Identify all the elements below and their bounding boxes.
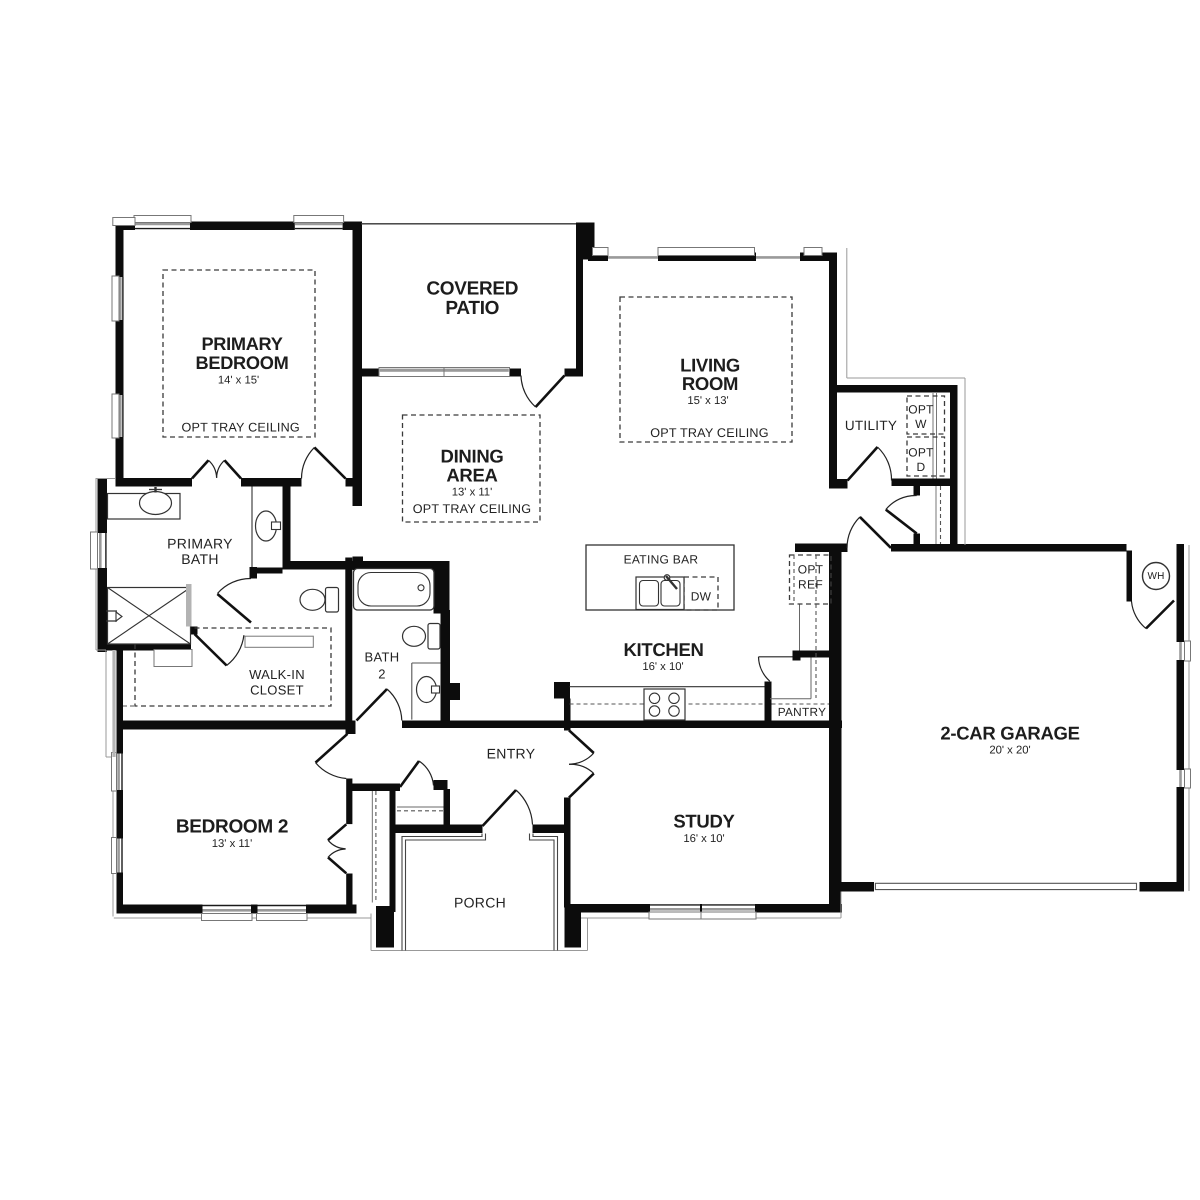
svg-text:KITCHEN: KITCHEN — [623, 639, 703, 660]
svg-text:13' x 11': 13' x 11' — [452, 487, 493, 499]
svg-text:AREA: AREA — [446, 465, 497, 486]
svg-text:W: W — [915, 417, 927, 431]
svg-text:ENTRY: ENTRY — [487, 746, 536, 762]
svg-text:20' x 20': 20' x 20' — [989, 745, 1030, 757]
svg-text:OPT TRAY CEILING: OPT TRAY CEILING — [650, 426, 768, 440]
svg-text:OPT TRAY CEILING: OPT TRAY CEILING — [413, 502, 531, 516]
svg-text:D: D — [917, 460, 926, 474]
svg-text:BEDROOM 2: BEDROOM 2 — [176, 817, 288, 838]
svg-text:DINING: DINING — [441, 446, 504, 467]
svg-text:PRIMARY: PRIMARY — [167, 536, 233, 552]
svg-text:CLOSET: CLOSET — [250, 683, 304, 698]
svg-text:OPT: OPT — [908, 403, 934, 417]
svg-text:14' x 15': 14' x 15' — [218, 375, 259, 387]
svg-text:2: 2 — [378, 667, 386, 682]
svg-text:15' x 13': 15' x 13' — [687, 395, 728, 407]
svg-text:DW: DW — [691, 590, 712, 604]
svg-text:UTILITY: UTILITY — [845, 418, 897, 433]
svg-text:PANTRY: PANTRY — [778, 705, 827, 719]
svg-text:REF: REF — [798, 578, 823, 592]
svg-text:2-CAR GARAGE: 2-CAR GARAGE — [940, 723, 1079, 744]
svg-text:PORCH: PORCH — [454, 895, 506, 911]
svg-text:16' x 10': 16' x 10' — [642, 661, 683, 673]
svg-text:BATH: BATH — [365, 650, 400, 665]
svg-text:PATIO: PATIO — [445, 298, 499, 319]
svg-text:BATH: BATH — [181, 551, 219, 567]
svg-text:OPT TRAY CEILING: OPT TRAY CEILING — [181, 421, 299, 435]
svg-text:PRIMARY: PRIMARY — [201, 334, 282, 354]
svg-text:ROOM: ROOM — [682, 373, 738, 394]
svg-text:COVERED: COVERED — [426, 279, 518, 300]
svg-text:OPT: OPT — [908, 446, 934, 460]
svg-text:BEDROOM: BEDROOM — [196, 353, 289, 373]
svg-text:13' x 11': 13' x 11' — [212, 838, 253, 850]
svg-text:STUDY: STUDY — [673, 811, 735, 832]
svg-text:WH: WH — [1147, 571, 1164, 582]
svg-text:WALK-IN: WALK-IN — [249, 667, 305, 682]
svg-text:OPT: OPT — [798, 563, 824, 577]
svg-text:16' x 10': 16' x 10' — [683, 833, 724, 845]
svg-text:EATING BAR: EATING BAR — [624, 553, 699, 567]
